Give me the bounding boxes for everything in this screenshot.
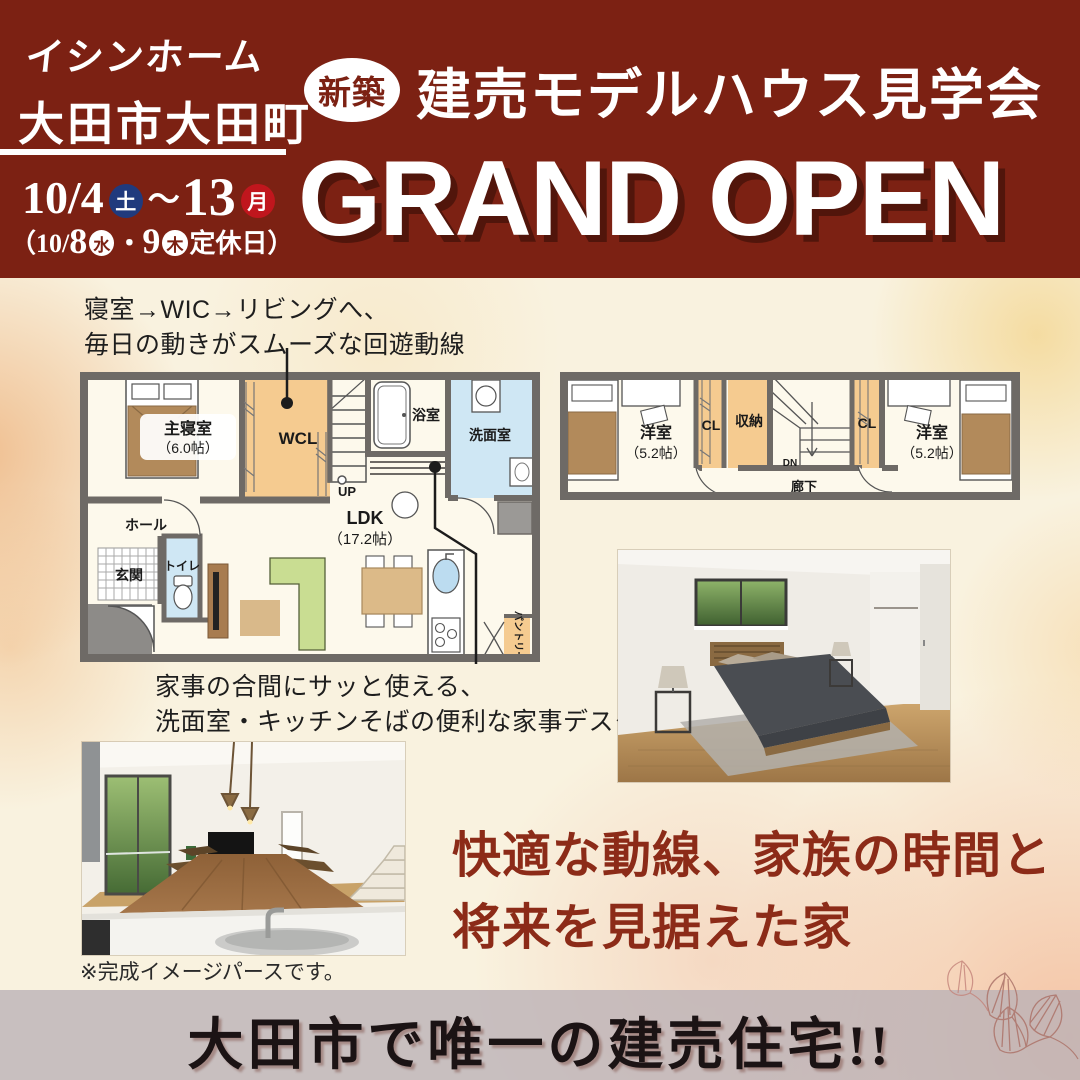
washer	[472, 380, 500, 412]
flyer-canvas: イシンホーム 大田市大田町 10/4 土 〜 13 月 （10/ 8 水 ・ 9…	[0, 0, 1080, 1080]
vanity	[510, 458, 534, 486]
washroom-label: 洗面室	[469, 427, 511, 443]
footer-catchphrase: 大田市で唯一の建売住宅!!	[0, 1000, 1080, 1080]
event-title: 建売モデルハウス見学会	[416, 50, 1043, 130]
grand-open-title: GRAND OPEN	[298, 136, 1080, 260]
date-start: 10/4	[22, 171, 104, 224]
saturday-badge: 土	[109, 184, 143, 218]
kitchen-sink-counter	[82, 906, 405, 955]
bedroom-label: 主寝室 （6.0帖）	[140, 414, 236, 460]
storage-label: 収納	[735, 413, 763, 429]
toilet-label: トイレ	[164, 559, 200, 573]
flow-annotation-line1: 寝室→WIC→リビングへ、	[84, 293, 465, 328]
date-end: 13	[182, 166, 236, 228]
note-day9: 9	[142, 220, 160, 262]
event-dates: 10/4 土 〜 13 月	[22, 166, 302, 228]
dining-window	[106, 776, 170, 894]
date-tilde: 〜	[148, 174, 180, 220]
closed-days-note: （10/ 8 水 ・ 9 木 定休日）	[10, 220, 290, 262]
wcl-label: WCL	[279, 429, 318, 448]
bed-left	[566, 380, 618, 480]
catch-copy-line1: 快適な動線、家族の時間と	[452, 820, 1052, 892]
bedroom-name: 主寝室	[164, 419, 212, 438]
monday-badge: 月	[241, 184, 275, 218]
company-logo: イシンホーム	[23, 26, 268, 81]
toilet-fixture	[174, 576, 192, 609]
thursday-badge: 木	[162, 230, 187, 256]
stairs-down	[772, 376, 852, 468]
catch-copy-line2: 将来を見据えた家	[452, 892, 1052, 964]
entrance-label: 玄関	[115, 567, 143, 583]
bedroom-size: （6.0帖）	[157, 440, 218, 456]
header-divider	[0, 149, 286, 155]
flow-annotation-line2: 毎日の動きがスムーズな回遊動線	[84, 328, 465, 363]
bathtub	[374, 382, 410, 448]
note-prefix: （10/	[10, 223, 69, 260]
floorplan-1f: 主寝室 （6.0帖） WCL 浴室 洗面室 ホール 玄関 トイレ UP LDK	[80, 372, 540, 662]
bath-label: 浴室	[412, 407, 440, 423]
new-construction-badge: 新築	[304, 58, 400, 122]
bedroom-window	[694, 580, 788, 630]
ldk-label: LDK	[347, 508, 384, 528]
ldk-size: （17.2帖）	[328, 531, 402, 548]
tv-board	[208, 564, 228, 638]
pantry-label: パントリー	[512, 611, 524, 662]
hall-label: ホール	[125, 517, 167, 533]
room-left-label: 洋室	[640, 423, 672, 442]
stairs-up	[328, 376, 366, 484]
room-left-size: （5.2帖）	[625, 445, 686, 461]
fridge	[498, 502, 532, 534]
desk-annotation: 家事の合間にサッと使える、 洗面室・キッチンそばの便利な家事デスク	[155, 670, 640, 740]
catch-copy: 快適な動線、家族の時間と 将来を見据えた家	[452, 820, 1052, 964]
wednesday-badge: 水	[89, 230, 114, 256]
desk-annotation-line1: 家事の合間にサッと使える、	[155, 670, 640, 705]
note-dot: ・	[116, 223, 142, 260]
hallway-label: 廊下	[791, 479, 817, 494]
photo-caption: ※完成イメージパースです。	[80, 956, 345, 986]
dn-label: DN	[783, 458, 797, 469]
note-day8: 8	[69, 220, 87, 262]
note-suffix: 定休日）	[190, 223, 291, 260]
header-band: イシンホーム 大田市大田町 10/4 土 〜 13 月 （10/ 8 水 ・ 9…	[0, 0, 1080, 278]
flow-annotation: 寝室→WIC→リビングへ、 毎日の動きがスムーズな回遊動線	[84, 293, 465, 363]
title-row: 新築 建売モデルハウス見学会	[304, 50, 1043, 130]
location-title: 大田市大田町	[18, 88, 312, 154]
rug	[240, 600, 280, 636]
dining-photo	[82, 742, 405, 955]
up-label: UP	[338, 484, 356, 499]
cl-right-label: CL	[858, 415, 877, 431]
desk-annotation-line2: 洗面室・キッチンそばの便利な家事デスク	[155, 705, 640, 740]
cl-left-label: CL	[702, 417, 721, 433]
room-right-size: （5.2帖）	[901, 445, 962, 461]
room-right-label: 洋室	[916, 423, 948, 442]
round-stool	[392, 492, 418, 518]
floorplan-2f: 洋室 （5.2帖） CL 収納 DN 廊下 CL 洋室 （5.2帖）	[560, 372, 1020, 500]
bed-right	[960, 380, 1012, 480]
bedroom-photo	[618, 550, 950, 782]
kitchen-counter	[428, 550, 464, 656]
